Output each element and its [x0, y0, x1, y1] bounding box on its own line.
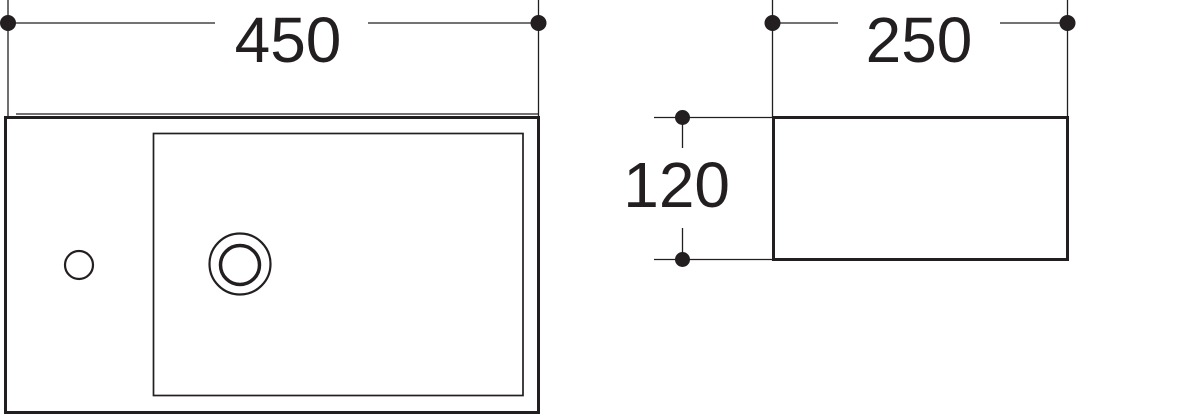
faucet-hole — [65, 251, 93, 279]
basin-outline — [6, 118, 539, 413]
height-endpoint-dot-bottom — [675, 252, 690, 267]
depth-endpoint-dot-left — [765, 15, 781, 31]
drain-inner-ring — [221, 246, 260, 285]
depth-dimension: 250 — [765, 0, 1076, 117]
width-endpoint-dot-right — [531, 15, 547, 31]
side-view — [774, 118, 1068, 260]
depth-endpoint-dot-right — [1060, 15, 1076, 31]
width-dimension-label: 450 — [235, 4, 342, 76]
basin-technical-drawing: 450 250 120 — [0, 0, 1200, 416]
top-view — [6, 114, 539, 413]
drawing-svg: 450 250 120 — [0, 0, 1200, 416]
width-endpoint-dot-left — [0, 15, 16, 31]
height-dimension-label: 120 — [623, 149, 730, 221]
width-dimension: 450 — [0, 0, 547, 117]
height-dimension: 120 — [623, 110, 772, 267]
height-endpoint-dot-top — [675, 110, 690, 125]
depth-dimension-label: 250 — [866, 4, 973, 76]
side-profile-outline — [774, 118, 1068, 260]
